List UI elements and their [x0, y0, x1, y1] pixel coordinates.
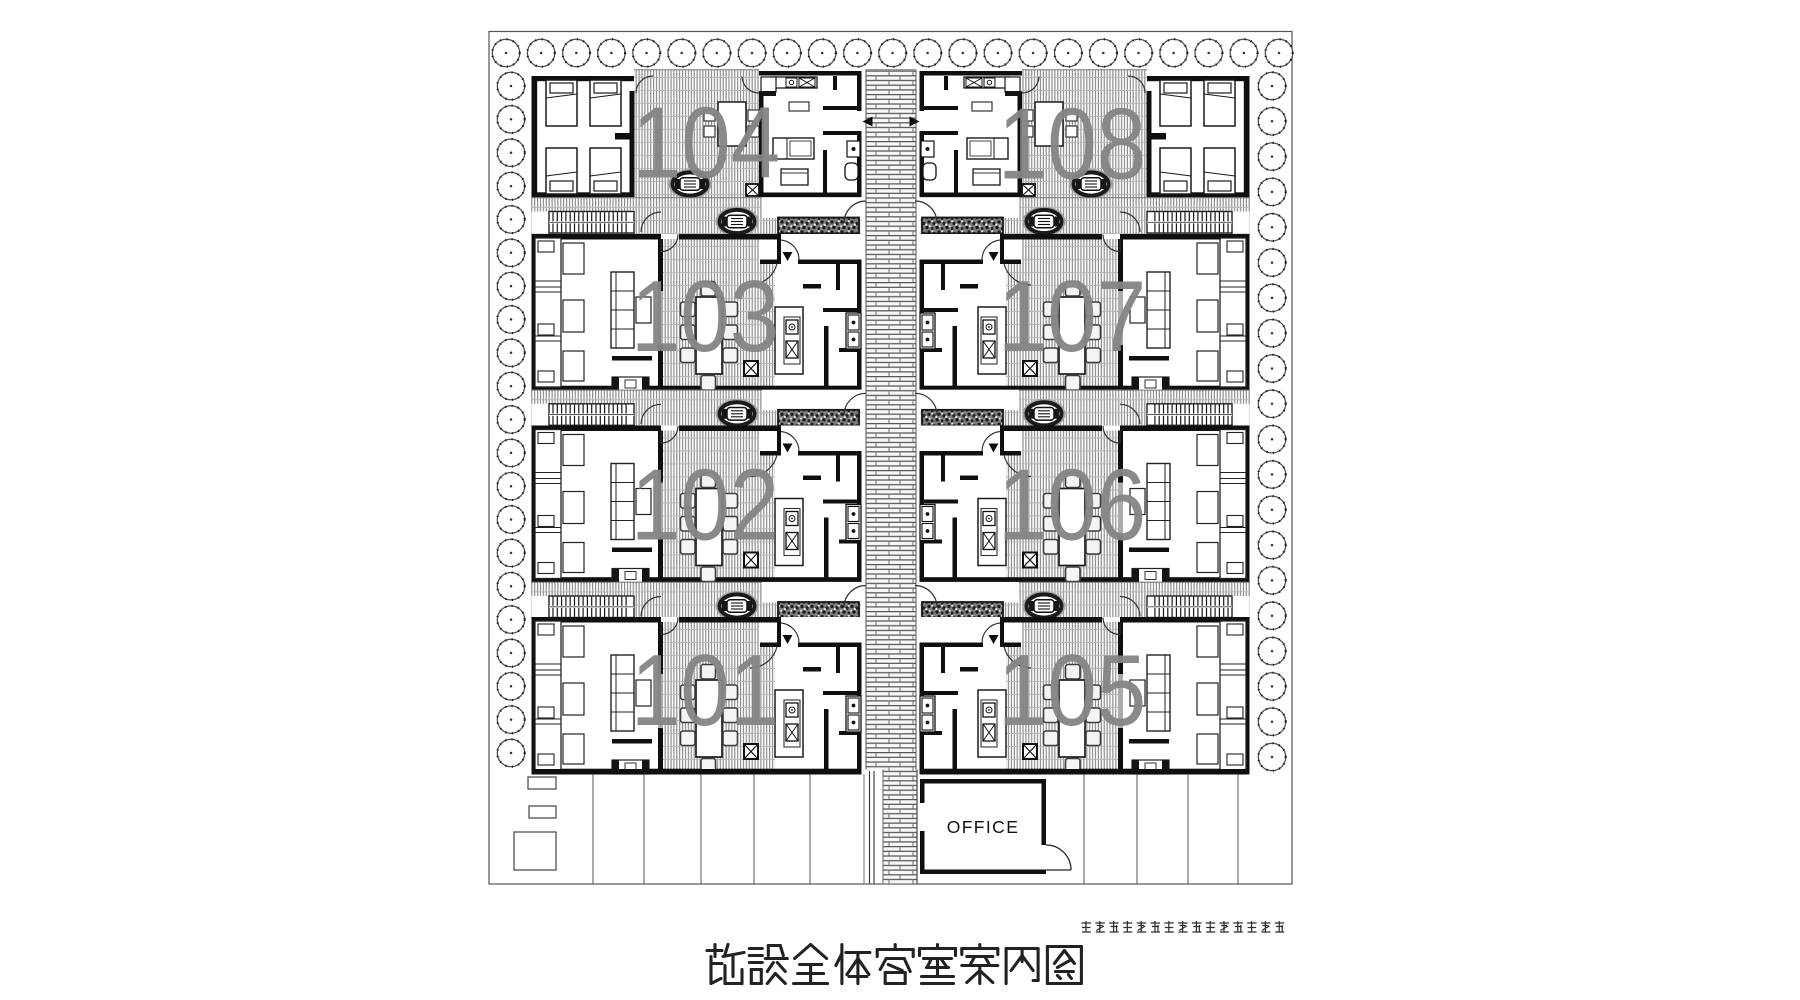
svg-text:108: 108 — [998, 88, 1146, 201]
svg-text:101: 101 — [631, 635, 779, 748]
svg-text:106: 106 — [998, 449, 1146, 562]
svg-text:103: 103 — [631, 261, 779, 374]
svg-text:105: 105 — [998, 635, 1146, 748]
svg-text:102: 102 — [631, 449, 779, 562]
svg-text:107: 107 — [998, 261, 1146, 374]
svg-text:104: 104 — [632, 87, 780, 200]
svg-text:OFFICE: OFFICE — [947, 817, 1020, 837]
